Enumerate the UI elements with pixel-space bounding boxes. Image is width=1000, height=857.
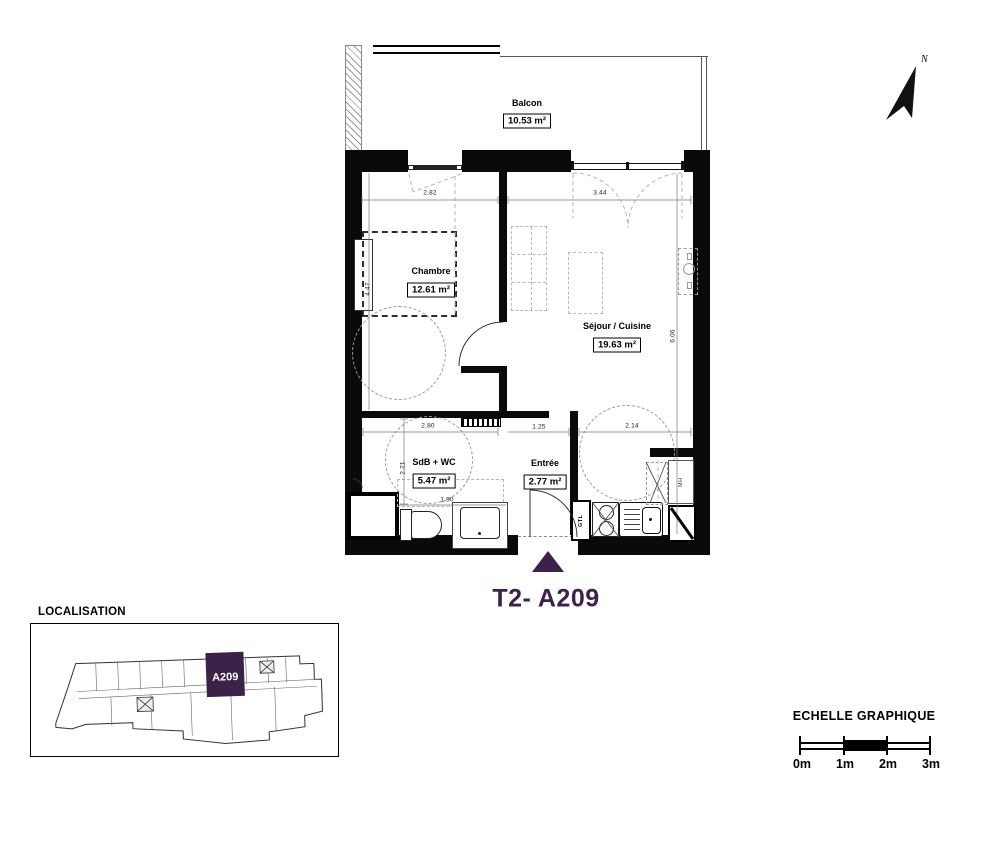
dim-right-height: 6.06 (670, 329, 677, 342)
north-arrow-icon: N (875, 40, 945, 140)
room-label-sejour: Séjour / Cuisine (583, 321, 651, 331)
dim-sdb-width: 2.80 (421, 423, 434, 430)
area-badge-sdb: 5.47 m² (413, 474, 456, 489)
area-badge-chambre: 12.61 m² (407, 283, 455, 298)
room-label-entree: Entrée (531, 458, 559, 468)
room-label-sdb: SdB + WC (412, 457, 455, 467)
localisation-heading: LOCALISATION (38, 606, 126, 618)
room-label-chambre: Chambre (411, 266, 450, 276)
scale-tick-3: 3m (922, 757, 940, 771)
localisation-unit-label: A209 (212, 671, 239, 684)
dim-sdb-bottom: 1.90 (440, 497, 453, 504)
dim-cuisine-width: 2.14 (625, 423, 638, 430)
north-label: N (920, 54, 929, 65)
area-badge-balcon: 10.53 m² (503, 114, 551, 129)
dim-sdb-height: 2.21 (400, 461, 407, 474)
area-badge-entree: 2.77 m² (524, 475, 567, 490)
dim-sejour-width: 3.44 (593, 190, 606, 197)
dim-left-height: 4.47 (365, 282, 372, 295)
scale-tick-0: 0m (793, 757, 811, 771)
scale-heading: ECHELLE GRAPHIQUE (793, 709, 936, 723)
entrance-triangle-icon (532, 551, 564, 572)
localisation-map: A209 (30, 623, 339, 757)
dim-chambre-width: 2.82 (423, 190, 436, 197)
dim-entree-width: 1.25 (532, 424, 545, 431)
scale-filled-segment (843, 740, 887, 751)
scale-tick-1: 1m (836, 757, 854, 771)
room-label-balcon: Balcon (512, 98, 542, 108)
scale-tick-2: 2m (879, 757, 897, 771)
area-badge-sejour: 19.63 m² (593, 338, 641, 353)
floorplan-page: { "title": "T2- A209", "north": "N", "pl… (0, 0, 1000, 857)
page-title: T2- A209 (492, 585, 599, 614)
